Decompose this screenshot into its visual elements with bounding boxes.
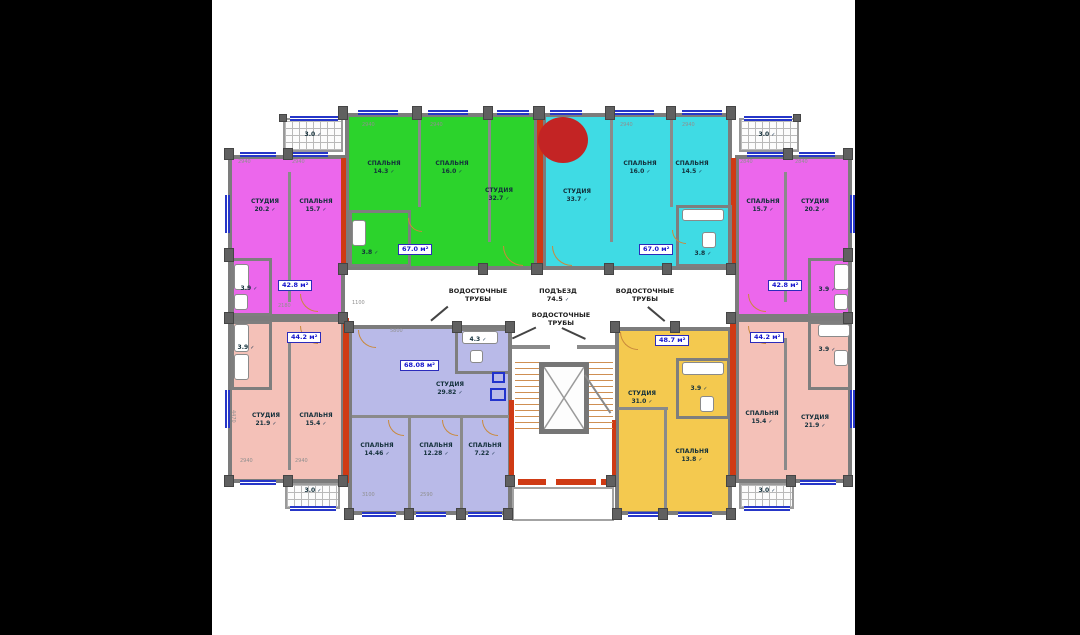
red-wall	[343, 318, 349, 483]
dimension-label: 2940	[238, 159, 251, 165]
balcony-area-label: 3.0 ✓	[298, 131, 328, 138]
wall-pillar	[505, 321, 515, 333]
dimension-label: 4470	[230, 410, 236, 423]
room-label: СТУДИЯ33.7 ✓	[552, 188, 602, 204]
wall-pillar	[338, 263, 348, 275]
dimension-label: 2940	[362, 122, 375, 128]
window	[362, 512, 396, 517]
wall-pillar	[505, 475, 515, 487]
unit-area-badge: 42.8 м²	[278, 280, 312, 291]
dimension-label: 2940	[430, 122, 443, 128]
unit-area-badge: 67.0 м²	[398, 244, 432, 255]
dimension-label: 1100	[352, 300, 365, 306]
wall-pillar	[224, 312, 234, 324]
window	[800, 480, 836, 485]
toilet-icon	[234, 294, 248, 310]
wall-pillar	[726, 475, 736, 487]
interior-wall	[488, 117, 491, 242]
bathroom-area-label: 4.3 ✓	[463, 336, 493, 343]
wall-pillar	[503, 508, 513, 520]
electrical-meter-icon	[490, 388, 506, 401]
dimension-label: 2180	[278, 303, 291, 309]
unit-area-badge: 48.7 м²	[655, 335, 689, 346]
room-label: СПАЛЬНЯ13.8 ✓	[667, 448, 717, 464]
wall-pillar	[612, 508, 622, 520]
window	[240, 152, 276, 157]
room-label: СПАЛЬНЯ15.7 ✓	[291, 198, 341, 214]
balcony-area-label: 3.0 ✓	[752, 131, 782, 138]
red-wall	[518, 479, 546, 485]
apartment-bottom-orange	[615, 327, 732, 515]
wall-pillar	[456, 508, 466, 520]
wall-pillar	[843, 148, 853, 160]
wall-pillar	[606, 475, 616, 487]
dimension-label: 2590	[420, 492, 433, 498]
wall-pillar	[412, 106, 422, 120]
room-label: СПАЛЬНЯ16.0 ✓	[427, 160, 477, 176]
interior-wall	[408, 418, 411, 512]
unit-area-badge: 68.08 м²	[400, 360, 439, 371]
wall-pillar	[224, 475, 234, 487]
dimension-label: 2840	[795, 159, 808, 165]
wall-pillar	[726, 263, 736, 275]
room-label: СПАЛЬНЯ12.28 ✓	[411, 442, 461, 458]
arrow-line	[562, 327, 586, 339]
dimension-label: 2940	[620, 122, 633, 128]
window	[240, 480, 276, 485]
wall-pillar	[843, 312, 853, 324]
unit-area-badge: 44.2 м²	[750, 332, 784, 343]
wall-pillar	[483, 106, 493, 120]
entrance-label: ПОДЪЕЗД 74.5 ✓	[528, 287, 588, 303]
bathtub-icon	[682, 209, 724, 221]
window	[468, 512, 502, 517]
room-label: СТУДИЯ20.2 ✓	[240, 198, 290, 214]
wall-pillar	[793, 114, 801, 122]
electrical-panel-icon	[492, 372, 505, 383]
window	[550, 110, 582, 115]
wall-pillar	[338, 106, 348, 120]
window	[850, 390, 855, 428]
window	[497, 110, 529, 115]
window	[628, 512, 662, 517]
balcony-area-label: 3.0 ✓	[298, 487, 328, 494]
bathtub-icon	[818, 324, 850, 337]
bathtub-icon	[682, 362, 724, 375]
interior-wall	[288, 338, 291, 470]
wall-pillar	[726, 106, 736, 120]
room-label: СПАЛЬНЯ15.7 ✓	[738, 198, 788, 214]
window	[292, 152, 328, 157]
drainpipes-label-left: ВОДОСТОЧНЫЕ ТРУБЫ	[445, 287, 511, 303]
bathroom-area-label: 3.8 ✓	[355, 249, 385, 256]
dimension-label: 2940	[292, 159, 305, 165]
room-label: СТУДИЯ32.7 ✓	[474, 187, 524, 203]
room-label: СТУДИЯ29.82 ✓	[425, 381, 475, 397]
interior-wall	[418, 117, 421, 207]
window	[799, 152, 835, 157]
red-wall	[509, 400, 514, 480]
interior-wall	[352, 415, 509, 418]
wall-pillar	[224, 248, 234, 262]
interior-wall	[784, 338, 787, 470]
wall-pillar	[662, 263, 672, 275]
wall-pillar	[786, 475, 796, 487]
wall-pillar	[344, 508, 354, 520]
unit-area-badge: 67.0 м²	[639, 244, 673, 255]
dimension-label: 3100	[362, 492, 375, 498]
wall-pillar	[666, 106, 676, 120]
window	[225, 195, 230, 233]
interior-wall	[610, 117, 613, 242]
wall-pillar	[224, 148, 234, 160]
right-black-bar	[855, 0, 1080, 635]
room-label: СПАЛЬНЯ15.4 ✓	[737, 410, 787, 426]
wall-pillar	[283, 475, 293, 487]
window	[428, 110, 468, 115]
bathroom-area-label: 3.8 ✓	[688, 250, 718, 257]
bathroom-area-label: 3.9 ✓	[812, 286, 842, 293]
interior-wall	[577, 345, 615, 349]
window	[744, 116, 792, 121]
bathtub-icon	[234, 354, 249, 380]
bathroom-area-label: 3.9 ✓	[684, 385, 714, 392]
window	[678, 512, 712, 517]
wall-pillar	[670, 321, 680, 333]
room-label: СПАЛЬНЯ14.46 ✓	[352, 442, 402, 458]
wall-pillar	[338, 475, 348, 487]
room-label: СТУДИЯ21.9 ✓	[241, 412, 291, 428]
drainpipes-label-right: ВОДОСТОЧНЫЕ ТРУБЫ	[612, 287, 678, 303]
room-label: СПАЛЬНЯ14.3 ✓	[359, 160, 409, 176]
elevator-x-icon	[544, 367, 584, 429]
floor-plan-image: СТУДИЯ20.2 ✓ СПАЛЬНЯ15.7 ✓ 3.9 ✓ 42.8 м²…	[0, 0, 1080, 635]
red-wall	[556, 479, 596, 485]
red-wall	[730, 318, 736, 483]
wall-pillar	[783, 148, 793, 160]
wall-pillar	[344, 321, 354, 333]
dimension-label: 2940	[682, 122, 695, 128]
wall-pillar	[726, 312, 736, 324]
room-label: СПАЛЬНЯ15.4 ✓	[291, 412, 341, 428]
dimension-label: 5800	[390, 328, 403, 334]
red-wall	[341, 158, 346, 270]
dimension-label: 2940	[295, 458, 308, 464]
interior-wall	[460, 418, 463, 512]
window	[747, 152, 783, 157]
window	[416, 512, 446, 517]
interior-wall	[512, 345, 550, 349]
stairs-left	[515, 362, 539, 434]
red-marker-circle	[538, 117, 588, 163]
window	[682, 110, 722, 115]
bathroom-area-label: 3.9 ✓	[231, 344, 261, 351]
window	[614, 110, 654, 115]
sink-icon	[470, 350, 483, 363]
wall-pillar	[843, 248, 853, 262]
room-label: СПАЛЬНЯ7.22 ✓	[460, 442, 510, 458]
wall-pillar	[452, 321, 462, 333]
window	[358, 110, 398, 115]
balcony-area-label: 3.0 ✓	[752, 487, 782, 494]
window	[290, 116, 338, 121]
wall-pillar	[279, 114, 287, 122]
wall-pillar	[404, 508, 414, 520]
toilet-icon	[834, 294, 848, 310]
bathtub-icon	[352, 220, 366, 246]
wall-pillar	[726, 508, 736, 520]
arrow-line	[512, 327, 536, 339]
unit-area-badge: 42.8 м²	[768, 280, 802, 291]
elevator-shaft	[539, 362, 589, 434]
bathroom-area-label: 3.9 ✓	[812, 346, 842, 353]
dimension-label: 2840	[740, 159, 753, 165]
wall-pillar	[531, 263, 543, 275]
window	[290, 506, 336, 511]
wall-pillar	[843, 475, 853, 487]
drainpipes-label-center: ВОДОСТОЧНЫЕ ТРУБЫ	[528, 311, 594, 327]
room-label: СТУДИЯ20.2 ✓	[790, 198, 840, 214]
room-label: СТУДИЯ21.9 ✓	[790, 414, 840, 430]
room-label: СТУДИЯ31.0 ✓	[617, 390, 667, 406]
window	[744, 506, 790, 511]
room-label: СПАЛЬНЯ14.5 ✓	[667, 160, 717, 176]
dimension-label: 2940	[240, 458, 253, 464]
toilet-icon	[702, 232, 716, 248]
wall-pillar	[533, 106, 545, 120]
bathroom-area-label: 3.9 ✓	[234, 285, 264, 292]
entrance-porch	[512, 487, 614, 521]
room-label: СПАЛЬНЯ16.0 ✓	[615, 160, 665, 176]
wall-pillar	[478, 263, 488, 275]
left-black-bar	[0, 0, 212, 635]
interior-wall	[618, 407, 668, 410]
wall-pillar	[605, 106, 615, 120]
toilet-icon	[700, 396, 714, 412]
arrow-line	[431, 306, 449, 321]
arrow-line	[648, 306, 666, 321]
window	[850, 195, 855, 233]
unit-area-badge: 44.2 м²	[287, 332, 321, 343]
wall-pillar	[610, 321, 620, 333]
wall-pillar	[604, 263, 614, 275]
wall-pillar	[658, 508, 668, 520]
